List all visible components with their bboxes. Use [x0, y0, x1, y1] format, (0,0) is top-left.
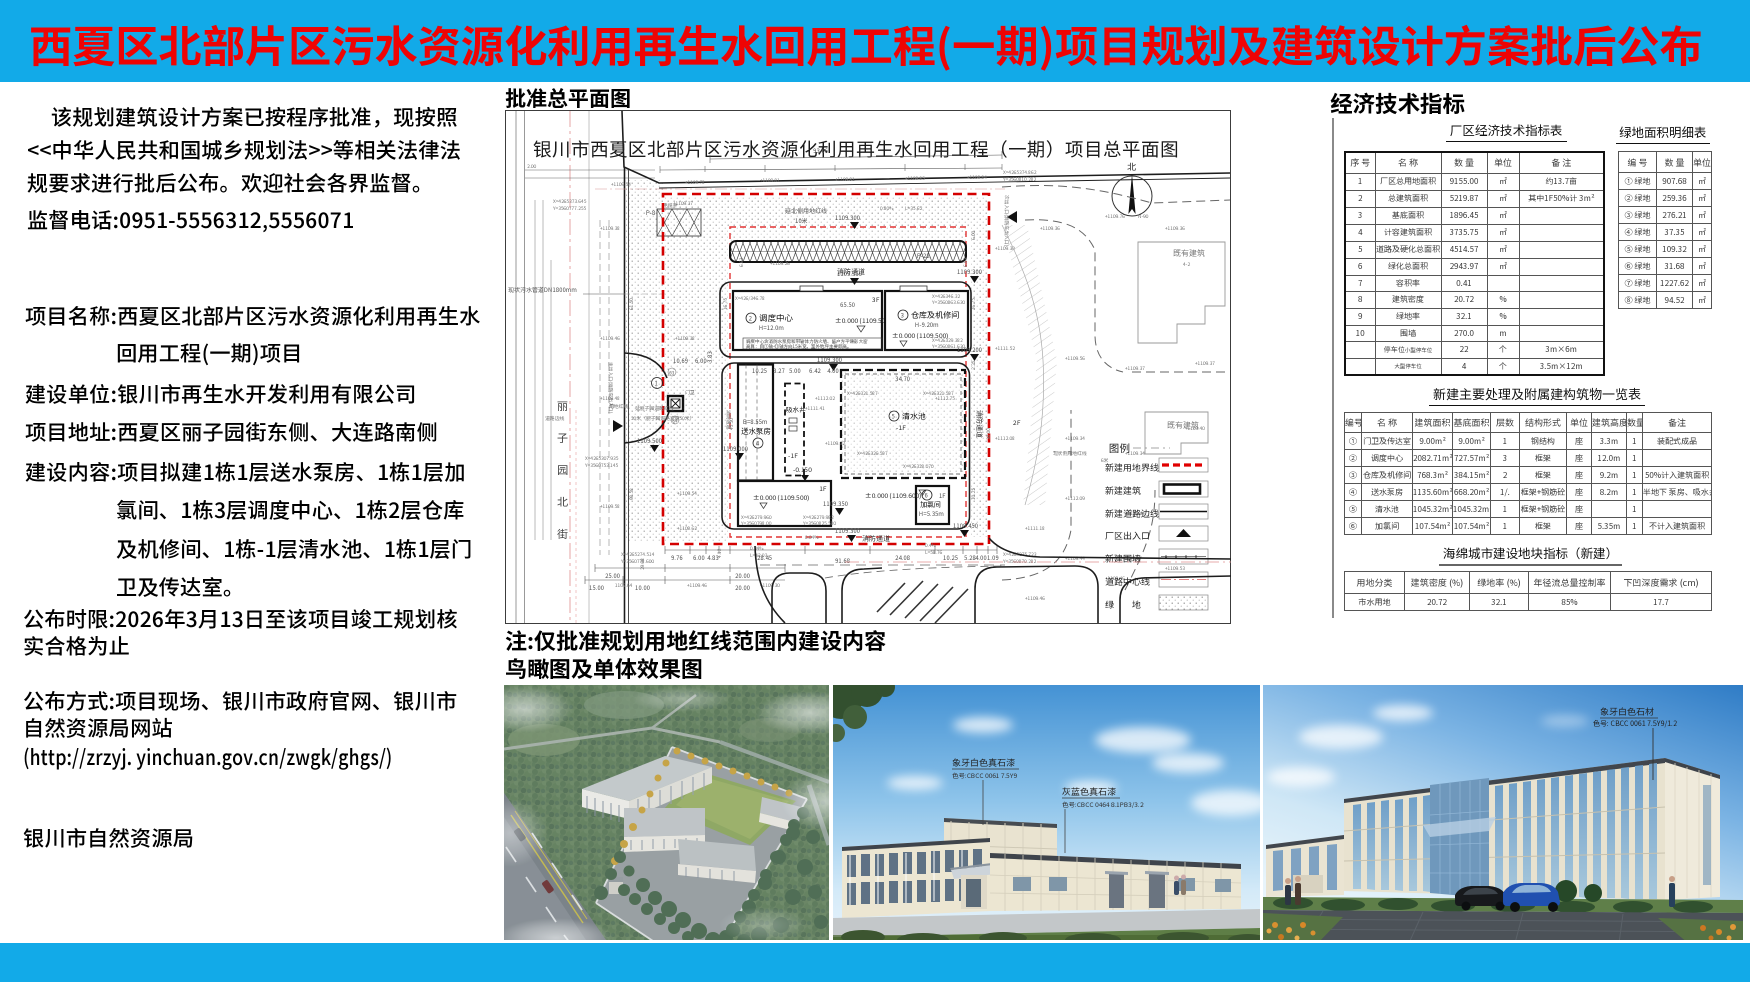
- svg-text:消防通道: 消防通道: [974, 410, 984, 438]
- svg-text:X=426328.070: X=426328.070: [903, 463, 934, 470]
- svg-text:B=8.55m: B=8.55m: [743, 417, 768, 426]
- svg-text:4.12: 4.12: [716, 548, 723, 558]
- svg-text:+1111.52: +1111.52: [995, 345, 1015, 352]
- svg-text:H=5.35m: H=5.35m: [919, 509, 944, 518]
- svg-text:4.00: 4.00: [975, 553, 987, 562]
- svg-text:93.06: 93.06: [813, 146, 828, 155]
- svg-text:P-8: P-8: [646, 208, 656, 217]
- svg-text:1109.350: 1109.350: [823, 499, 848, 508]
- svg-text:Y=3560810.282: Y=3560810.282: [1003, 176, 1037, 183]
- svg-text:1109.300: 1109.300: [957, 267, 982, 276]
- svg-text:+1109.78: +1109.78: [685, 179, 706, 186]
- svg-text:X=426326.587: X=426326.587: [857, 450, 888, 457]
- svg-text:子: 子: [557, 430, 568, 446]
- svg-text:1.09: 1.09: [987, 553, 999, 562]
- svg-text:+1109.81: +1109.81: [760, 177, 780, 184]
- svg-text:+1109.36: +1109.36: [1040, 225, 1060, 232]
- svg-text:+1109.46: +1109.46: [1025, 595, 1045, 602]
- svg-text:0.34%: 0.34%: [750, 545, 764, 552]
- svg-text:5.00: 5.00: [788, 366, 801, 375]
- svg-text:+1109.84: +1109.84: [967, 174, 988, 181]
- svg-text:现状污水管道DN1800mm: 现状污水管道DN1800mm: [508, 285, 577, 294]
- svg-text:+1109.53: +1109.53: [1165, 565, 1185, 572]
- svg-text:+1109.38: +1109.38: [600, 225, 621, 232]
- svg-text:X=4265274.514: X=4265274.514: [621, 551, 656, 558]
- svg-text:1109.000: 1109.000: [723, 444, 748, 453]
- svg-text:1109.200: 1109.200: [957, 345, 982, 354]
- svg-text:X=426321.587: X=426321.587: [847, 390, 878, 397]
- svg-text:新建道路边线: 新建道路边线: [1105, 507, 1160, 520]
- svg-text:-0.150: -0.150: [793, 464, 812, 474]
- svg-text:1109.350: 1109.350: [837, 269, 862, 278]
- svg-text:象牙白色真石漆: 象牙白色真石漆: [952, 756, 1015, 769]
- svg-text:+1109.37: +1109.37: [673, 200, 693, 207]
- svg-text:6.00: 6.00: [970, 230, 977, 240]
- svg-text:20.00: 20.00: [735, 583, 750, 592]
- svg-text:Y=3560777.255: Y=3560777.255: [553, 205, 587, 212]
- svg-text:4.00: 4.00: [827, 366, 839, 375]
- svg-text:N-90: N-90: [1138, 213, 1149, 220]
- svg-text:10.69: 10.69: [673, 356, 688, 365]
- svg-text:3F: 3F: [871, 294, 879, 304]
- svg-text:+1109.46: +1109.46: [600, 335, 620, 342]
- svg-text:既有建筑: 既有建筑: [1167, 420, 1199, 431]
- svg-text:延北侧用地红线: 延北侧用地红线: [784, 206, 828, 215]
- svg-text:+1109.46: +1109.46: [687, 582, 707, 589]
- svg-text:2.25: 2.25: [970, 360, 977, 370]
- svg-text:X=4265373.645: X=4265373.645: [553, 198, 587, 205]
- svg-text:+1112.02: +1112.02: [815, 395, 835, 402]
- svg-text:±0.000 (1109.500): ±0.000 (1109.500): [835, 315, 891, 325]
- svg-text:街: 街: [557, 526, 568, 542]
- svg-text:1109.300: 1109.300: [835, 213, 860, 222]
- svg-text:1109.450: 1109.450: [953, 521, 978, 530]
- svg-text:道路边线: 道路边线: [545, 415, 564, 422]
- svg-text:1109.64: 1109.64: [615, 582, 634, 589]
- svg-text:+1112.08: +1112.08: [995, 435, 1016, 442]
- svg-text:送水泵房: 送水泵房: [741, 426, 771, 437]
- svg-text:30.00: 30.00: [985, 428, 992, 441]
- svg-text:北: 北: [1127, 160, 1137, 173]
- svg-text:Y=3560825.580: Y=3560825.580: [803, 520, 837, 527]
- svg-text:-1F: -1F: [896, 422, 906, 432]
- svg-text:0.80%: 0.80%: [880, 205, 894, 212]
- svg-text:+1109.54: +1109.54: [677, 490, 698, 497]
- svg-text:3: 3: [901, 311, 904, 320]
- svg-text:新建用地界线: 新建用地界线: [1105, 461, 1160, 474]
- svg-text:厂区出入口: 厂区出入口: [1105, 529, 1150, 542]
- svg-text:10米: 10米: [795, 216, 808, 225]
- svg-text:1: 1: [655, 379, 658, 388]
- svg-text:6.42: 6.42: [809, 366, 821, 375]
- svg-text:65.50: 65.50: [840, 300, 855, 309]
- svg-text:消防通道: 消防通道: [725, 410, 732, 430]
- svg-text:用地红线: 用地红线: [609, 403, 628, 410]
- svg-text:1109.300: 1109.300: [835, 526, 860, 535]
- svg-text:+1109.37: +1109.37: [1125, 365, 1145, 372]
- svg-text:28.45: 28.45: [757, 553, 772, 562]
- svg-text:北: 北: [557, 494, 568, 510]
- svg-text:新建建筑: 新建建筑: [1105, 484, 1142, 497]
- svg-text:25.00: 25.00: [605, 571, 620, 580]
- svg-text:银川市西夏区北部片区污水资源化利用再生水回用工程（一期）项目: 银川市西夏区北部片区污水资源化利用再生水回用工程（一期）项目总平面图: [533, 136, 1179, 162]
- svg-text:10.25: 10.25: [943, 553, 958, 562]
- svg-text:1109.300: 1109.300: [817, 355, 842, 364]
- svg-text:H=12.0m: H=12.0m: [759, 323, 784, 332]
- svg-text:图例: 图例: [1109, 441, 1130, 456]
- svg-text:+1109.44: +1109.44: [1065, 555, 1086, 562]
- svg-text:20.00: 20.00: [735, 571, 750, 580]
- svg-text:Y=3560778.600: Y=3560778.600: [621, 558, 655, 565]
- svg-text:丽: 丽: [557, 398, 568, 414]
- svg-text:消防通道: 消防通道: [862, 534, 890, 544]
- svg-text:+1111.18: +1111.18: [1025, 525, 1046, 532]
- svg-text:+1109.76: +1109.76: [1105, 213, 1125, 220]
- svg-text:现状侧用地红线: 现状侧用地红线: [1053, 450, 1087, 457]
- svg-text:4-2: 4-2: [1183, 261, 1190, 268]
- svg-text:+1109.36: +1109.36: [1165, 225, 1185, 232]
- svg-text:Y=3560798.00: Y=3560798.00: [741, 520, 772, 527]
- svg-text:+1109.58: +1109.58: [600, 503, 621, 510]
- svg-text:16.75: 16.75: [722, 298, 729, 310]
- svg-text:+1109.32: +1109.32: [825, 440, 845, 447]
- svg-text:P-22: P-22: [917, 251, 930, 260]
- svg-text:24.08: 24.08: [895, 553, 911, 562]
- svg-text:X=4265307.935: X=4265307.935: [585, 455, 619, 462]
- svg-text:98.58: 98.58: [628, 487, 635, 500]
- svg-text:2.00: 2.00: [527, 163, 537, 170]
- svg-text:3.83: 3.83: [705, 351, 714, 363]
- svg-text:+1109.37: +1109.37: [1195, 360, 1215, 367]
- svg-text:X=426/346.78: X=426/346.78: [735, 295, 766, 302]
- svg-text:2F: 2F: [1012, 417, 1020, 427]
- svg-text:±0.000 (1109.600): ±0.000 (1109.600): [865, 490, 921, 500]
- svg-text:10.00: 10.00: [635, 583, 650, 592]
- svg-text:+1108.62: +1108.62: [677, 525, 697, 532]
- svg-text:Y=3560863.630: Y=3560863.630: [932, 299, 966, 306]
- svg-text:+1109.34: +1109.34: [1065, 435, 1086, 442]
- svg-text:-1F: -1F: [788, 450, 798, 460]
- svg-text:延丽子园道路红线: 延丽子园道路红线: [634, 405, 674, 412]
- svg-text:+1109.48: +1109.48: [600, 395, 621, 402]
- svg-text:61.50: 61.50: [628, 298, 635, 310]
- svg-text:色号: CBCC 0061 7.5Y9/1.2: 色号: CBCC 0061 7.5Y9/1.2: [1593, 719, 1678, 729]
- svg-text:清水池: 清水池: [902, 411, 927, 422]
- svg-text:+1109.81: +1109.81: [835, 176, 855, 183]
- svg-text:+1112.09: +1112.09: [1065, 495, 1085, 502]
- svg-text:34.70: 34.70: [895, 374, 910, 383]
- svg-text:2: 2: [749, 314, 752, 323]
- svg-text:+1109.56: +1109.56: [1065, 355, 1085, 362]
- svg-text:H-9.20m: H-9.20m: [915, 320, 939, 329]
- svg-text:+1109.26: +1109.26: [770, 260, 790, 267]
- svg-text:高算：自①轴-⑫轴方向15米宽，室外地坪主要颜高。: 高算：自①轴-⑫轴方向15米宽，室外地坪主要颜高。: [746, 343, 852, 350]
- svg-text:绿 地: 绿 地: [1104, 598, 1141, 611]
- svg-text:Y=3560753.145: Y=3560753.145: [585, 462, 619, 469]
- svg-text:5: 5: [891, 412, 895, 421]
- svg-text:10.25: 10.25: [752, 366, 767, 375]
- svg-text:灰蓝色真石漆: 灰蓝色真石漆: [1062, 785, 1116, 798]
- svg-text:+1111.41: +1111.41: [805, 405, 825, 412]
- svg-text:既有建筑: 既有建筑: [1173, 248, 1205, 259]
- svg-text:园: 园: [557, 462, 568, 478]
- svg-text:91.68: 91.68: [835, 556, 851, 565]
- svg-text:±0.000 (1109.500): ±0.000 (1109.500): [753, 492, 809, 502]
- svg-text:3.27: 3.27: [773, 366, 785, 375]
- svg-text:吸水井: 吸水井: [786, 404, 806, 414]
- svg-text:1F: 1F: [819, 483, 826, 493]
- svg-text:9.76: 9.76: [671, 553, 683, 562]
- svg-text:+1109.34: +1109.34: [611, 181, 632, 188]
- svg-text:0.04%: 0.04%: [805, 534, 819, 541]
- svg-text:15.00: 15.00: [589, 583, 604, 592]
- svg-text:Y=3560870.282: Y=3560870.282: [1003, 558, 1037, 565]
- svg-text:象牙白色石材: 象牙白色石材: [1600, 705, 1654, 718]
- svg-text:+1112.75: +1112.75: [935, 395, 955, 402]
- svg-text:10.25: 10.25: [970, 488, 977, 500]
- svg-text:20米（丽子园道路宽度50米）: 20米（丽子园道路宽度50米）: [631, 415, 694, 422]
- svg-text:6.00: 6.00: [693, 553, 705, 562]
- svg-text:色号:CBCC 0061 7.5Y9: 色号:CBCC 0061 7.5Y9: [952, 770, 1017, 780]
- svg-text:+1109.38: +1109.38: [675, 335, 696, 342]
- svg-text:6.63: 6.63: [962, 258, 969, 267]
- svg-text:X=4265374.862: X=4265374.862: [1003, 169, 1037, 176]
- svg-text:63: 63: [670, 371, 675, 377]
- svg-text:6.63: 6.63: [738, 258, 745, 267]
- svg-text:1109.500: 1109.500: [637, 436, 662, 445]
- svg-text:+1109.85: +1109.85: [905, 175, 925, 182]
- svg-text:L=35.62: L=35.62: [905, 205, 923, 212]
- svg-text:16.75: 16.75: [970, 298, 977, 310]
- svg-text:1F: 1F: [939, 491, 946, 500]
- svg-text:色号:CBCC 0464 8.1PB3/3.2: 色号:CBCC 0464 8.1PB3/3.2: [1062, 799, 1144, 809]
- svg-text:门卫: 门卫: [685, 389, 695, 396]
